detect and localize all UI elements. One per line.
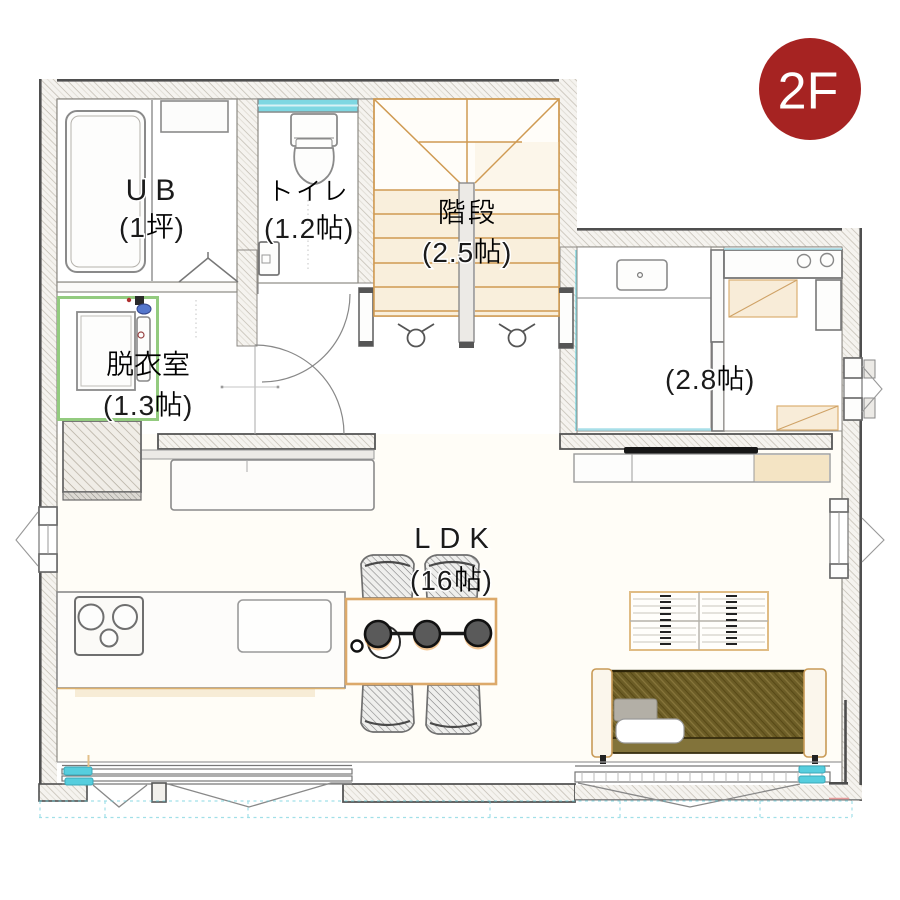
svg-text:(16: (16	[410, 565, 453, 596]
svg-text:): )	[502, 237, 512, 268]
svg-text:UB: UB	[126, 174, 184, 207]
svg-text:): )	[344, 213, 354, 244]
svg-text:): )	[483, 565, 493, 596]
svg-text:): )	[183, 390, 193, 421]
svg-text:(1: (1	[119, 212, 146, 243]
svg-text:2F: 2F	[778, 63, 839, 121]
svg-text:(1.2: (1.2	[264, 213, 316, 244]
svg-text:(1.3: (1.3	[103, 390, 155, 421]
svg-text:): )	[745, 364, 755, 395]
svg-text:(2.8: (2.8	[665, 364, 717, 395]
svg-text:LDK: LDK	[414, 523, 497, 555]
svg-text:(2.5: (2.5	[422, 237, 474, 268]
svg-text:): )	[175, 212, 185, 243]
